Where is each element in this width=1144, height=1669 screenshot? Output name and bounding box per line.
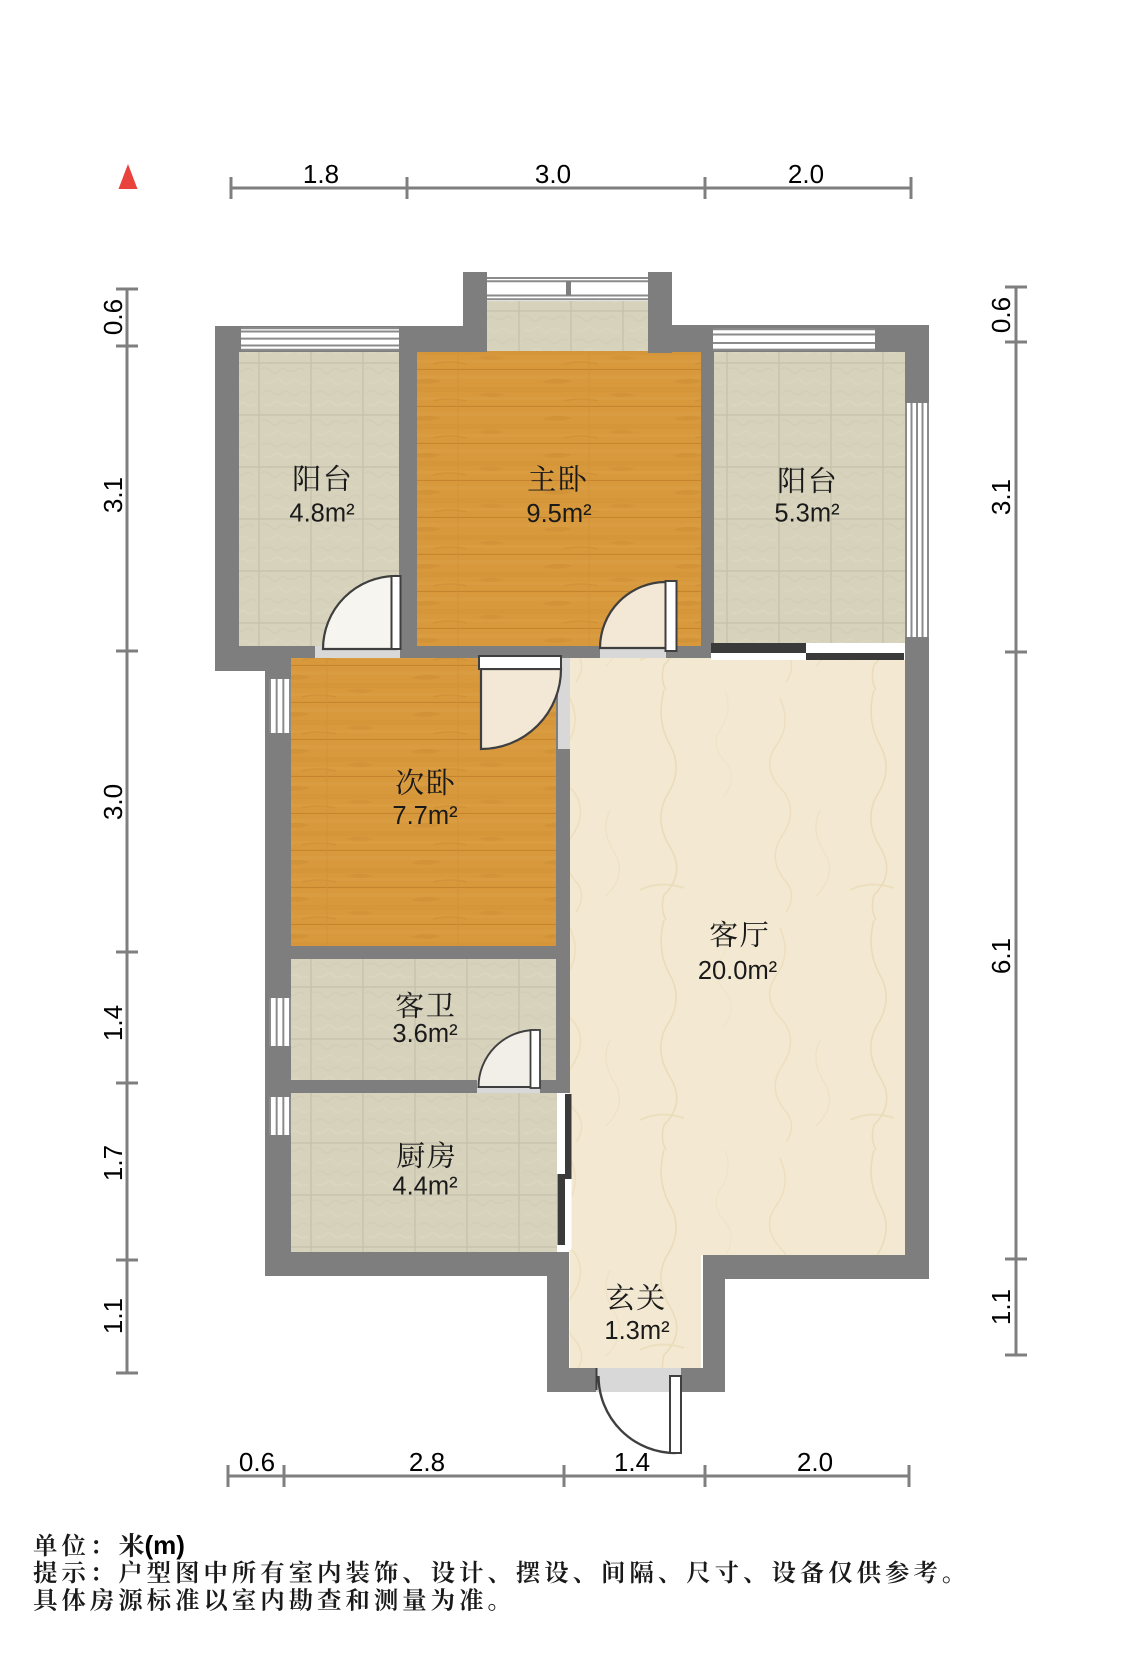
svg-text:1.4: 1.4	[98, 1005, 128, 1041]
svg-text:2.0: 2.0	[797, 1447, 833, 1477]
svg-text:0.6: 0.6	[239, 1447, 275, 1477]
svg-text:1.8: 1.8	[303, 159, 339, 189]
svg-text:6.1: 6.1	[986, 938, 1016, 974]
svg-text:3.1: 3.1	[98, 477, 128, 513]
svg-text:1.7: 1.7	[98, 1145, 128, 1181]
svg-text:4.8m²: 4.8m²	[289, 500, 354, 528]
svg-text:3.0: 3.0	[98, 784, 128, 820]
svg-text:(m): (m)	[145, 1530, 185, 1560]
svg-text:2.0: 2.0	[788, 159, 824, 189]
svg-text:3.1: 3.1	[986, 479, 1016, 515]
svg-text:0.6: 0.6	[98, 299, 128, 335]
svg-text:2.8: 2.8	[409, 1447, 445, 1477]
svg-text:1.3m²: 1.3m²	[604, 1317, 669, 1345]
svg-text:0.6: 0.6	[986, 297, 1016, 333]
svg-text:1.1: 1.1	[986, 1289, 1016, 1325]
svg-text:3.0: 3.0	[535, 159, 571, 189]
svg-text:1.1: 1.1	[98, 1298, 128, 1334]
svg-text:1.4: 1.4	[614, 1447, 650, 1477]
svg-text:5.3m²: 5.3m²	[774, 500, 839, 528]
svg-text:9.5m²: 9.5m²	[526, 500, 591, 528]
svg-text:3.6m²: 3.6m²	[392, 1020, 457, 1048]
svg-text:4.4m²: 4.4m²	[392, 1173, 457, 1201]
svg-text:20.0m²: 20.0m²	[698, 957, 777, 985]
svg-text:7.7m²: 7.7m²	[392, 802, 457, 830]
